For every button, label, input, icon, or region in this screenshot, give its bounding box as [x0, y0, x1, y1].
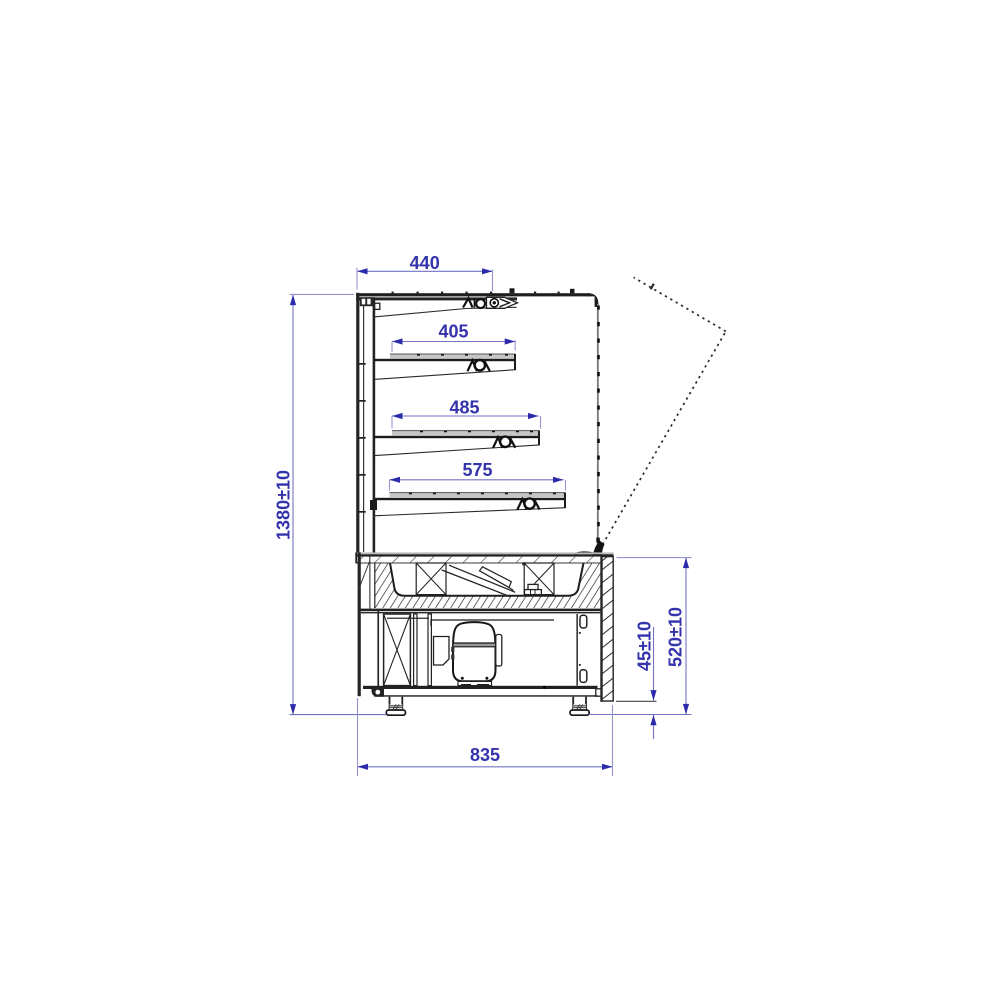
svg-text:405: 405 [438, 322, 468, 342]
svg-text:835: 835 [470, 745, 500, 765]
svg-text:485: 485 [449, 398, 479, 418]
svg-text:1380±10: 1380±10 [274, 470, 294, 540]
svg-text:575: 575 [462, 460, 492, 480]
svg-text:440: 440 [410, 253, 440, 273]
svg-text:45±10: 45±10 [635, 621, 655, 671]
svg-text:520±10: 520±10 [666, 607, 686, 667]
